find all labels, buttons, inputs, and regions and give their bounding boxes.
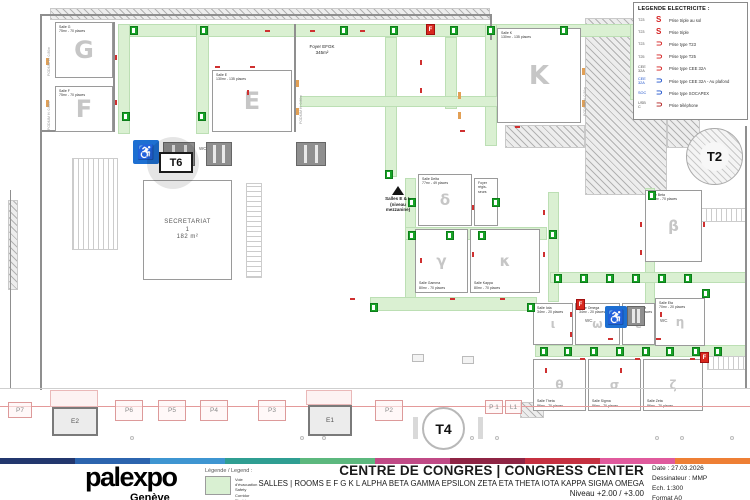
exit-sign-icon (702, 289, 710, 298)
elevator-icon (296, 142, 326, 166)
room-secretariat-label: SECRETARIAT 1 182 m² (144, 219, 231, 242)
palexpo-logo-city: Genève (130, 492, 170, 500)
legend-item-desc: Prise type T25 (669, 54, 743, 59)
color-strip-segment (0, 458, 75, 464)
room-sigma-letter: σ (610, 378, 619, 392)
room-iota: ιSalle Iota 34m² - 20 places (533, 303, 573, 345)
exit-sign-icon (692, 347, 700, 356)
exit-sign-icon (390, 26, 398, 35)
room-e-label: Salle E 130m² - 135 places (216, 73, 246, 82)
legend-item-code: T23 (638, 42, 656, 46)
power-outlet-icon (656, 338, 661, 340)
mezzanine-triangle-icon (392, 186, 404, 195)
outlet-symbol-icon: ⊃ (656, 101, 669, 109)
wall-line (745, 126, 747, 388)
drawing-level: Niveau +2.00 / +3.00 (259, 489, 645, 498)
exit-sign-icon (564, 347, 572, 356)
legend-item-code: CEE 32A (638, 77, 656, 85)
room-f-label: Salle F 75m² - 70 places (59, 89, 85, 98)
room-gamma-label: Salle Gamma 80m² - 70 places (419, 281, 445, 290)
wc-label: WC (585, 318, 593, 323)
wall-line (40, 14, 42, 390)
power-outlet-icon (420, 88, 422, 93)
stairs-icon (707, 356, 747, 370)
podium-label: PODIUM H: 0.80m (299, 95, 303, 124)
palexpo-logo: palexpo (85, 464, 177, 491)
outlet-symbol-icon: S (656, 16, 669, 24)
exit-sign-icon (446, 231, 454, 240)
drawing-title: CENTRE DE CONGRES | CONGRESS CENTER (259, 463, 645, 478)
column-dot (130, 436, 134, 440)
power-outlet-icon (635, 358, 640, 360)
gate-marker-p4: P4 (200, 400, 228, 421)
foyer-note: Foyer EFGK 345m² (302, 44, 342, 55)
exit-sign-icon (487, 26, 495, 35)
legend-item-desc: Prise type SOCAPEX (669, 91, 743, 96)
legend-item-desc: Prise type CEE 32A - Au plafond (669, 79, 743, 84)
power-outlet-icon (580, 358, 585, 360)
stairs-icon (246, 183, 262, 278)
power-outlet-icon (620, 368, 622, 373)
entrance-t2-label: T2 (700, 142, 729, 171)
podium-label: PODIUM H: 0.80m (47, 47, 51, 76)
fire-equipment-icon: F (576, 299, 585, 310)
electricity-legend-rows: T23SPrise triple au solT23SPrise tripleT… (638, 14, 743, 112)
power-outlet-icon (472, 205, 474, 210)
exit-sign-icon (590, 347, 598, 356)
exit-sign-icon (340, 26, 348, 35)
safety-corridor-swatch (205, 476, 231, 495)
exit-sign-icon (200, 26, 208, 35)
power-outlet-icon (570, 332, 572, 337)
gate-marker-p7: P7 (8, 402, 32, 418)
drawing-date: Date : 27.03.2026 (652, 464, 707, 474)
power-outlet-icon (350, 298, 355, 300)
room-kappa-label: Salle Kappa 80m² - 70 places (474, 281, 500, 290)
room-iota-label: Salle Iota 34m² - 20 places (537, 306, 563, 315)
drawing-subtitle: SALLES | ROOMS E F G K L ALPHA BETA GAMM… (259, 479, 645, 488)
drawing-drafter: Dessinateur : MMP (652, 474, 707, 484)
safety-corridor (385, 37, 397, 177)
floor-fixture (462, 356, 474, 364)
exit-sign-icon (540, 347, 548, 356)
power-outlet-icon (250, 66, 255, 68)
room-gamma: γSalle Gamma 80m² - 70 places (415, 229, 468, 293)
column-dot (495, 436, 499, 440)
room-g: GSalle G 75m² - 70 places (55, 22, 113, 78)
exit-sign-icon (642, 347, 650, 356)
column-dot (322, 436, 326, 440)
exit-sign-icon (492, 198, 500, 207)
wall-line (294, 24, 296, 132)
power-outlet-icon (640, 250, 642, 255)
elevator-icon (627, 306, 645, 326)
room-beta-letter: β (668, 217, 679, 235)
legend-item-desc: Prise téléphone (669, 103, 743, 108)
exit-sign-icon (684, 274, 692, 283)
electricity-legend-row: CEE 32A⊃Prise type CEE 32A (638, 63, 743, 75)
podium-label: PODIUM H: 0.80m (47, 101, 51, 130)
legend-item-code: CEE 32A (638, 65, 656, 73)
electricity-legend-row: T23⊃Prise type T23 (638, 38, 743, 50)
exit-sign-icon (527, 303, 535, 312)
legend-item-desc: Prise type T23 (669, 42, 743, 47)
safety-corridor (300, 96, 498, 107)
legend-item-desc: Prise type CEE 32A (669, 66, 743, 71)
pillar (478, 417, 483, 439)
footer-legend-lines: Voie d'évacuation Safety Corridor Flucht… (235, 477, 257, 500)
door-zone-e1 (306, 390, 352, 405)
power-outlet-icon (640, 222, 642, 227)
gate-marker-p3: P3 (258, 400, 286, 421)
room-sigma: σSalle Sigma 86m² - 70 places (588, 359, 641, 411)
exit-sign-icon (370, 303, 378, 312)
power-outlet-icon (660, 312, 662, 317)
floor-plan-sheet: GSalle G 75m² - 70 placesFSalle F 75m² -… (0, 0, 750, 500)
floor-fixture (412, 354, 424, 362)
wc-label: WC (660, 318, 668, 323)
room-f: FSalle F 75m² - 70 places (55, 86, 113, 132)
safety-corridor (548, 192, 559, 302)
power-outlet-icon (115, 100, 117, 105)
exit-sign-icon (560, 26, 568, 35)
power-outlet-icon (608, 338, 613, 340)
drawing-meta: Date : 27.03.2026 Dessinateur : MMP Ech.… (652, 464, 707, 500)
gate-marker-p6: P6 (115, 400, 143, 421)
exit-sign-icon (408, 231, 416, 240)
room-zeta: ζSalle Zeta 86m² - 70 places (643, 359, 703, 411)
power-outlet-icon (543, 252, 545, 257)
exit-sign-icon (385, 170, 393, 179)
legend-item-code: SOC (638, 91, 656, 95)
legend-item-code: USB C (638, 101, 656, 109)
power-outlet-icon (545, 368, 547, 373)
outlet-symbol-icon: ⊃ (656, 53, 669, 61)
stairs-icon (72, 158, 118, 250)
drawing-scale: Ech. 1:300 (652, 484, 707, 494)
podium-label: PODIUM H: 0.80m (583, 87, 587, 116)
power-outlet-icon (265, 30, 270, 32)
elevator-icon (206, 142, 232, 166)
power-outlet-icon (500, 298, 505, 300)
orange-fixture-icon (582, 68, 585, 75)
power-outlet-icon (690, 358, 695, 360)
entrance-t6-label: T6 (159, 152, 193, 173)
room-zeta-letter: ζ (669, 378, 676, 392)
electricity-legend-title: LEGENDE ELECTRICITE : (638, 6, 743, 12)
room-secretariat: SECRETARIAT 1 182 m² (143, 180, 232, 280)
hatched-area (505, 125, 585, 148)
drawing-format: Format A0 (652, 494, 707, 500)
wall-line (10, 190, 11, 388)
mezzanine-note: Salles E & L (niveau mezzanine) (368, 196, 428, 213)
orange-fixture-icon (296, 80, 299, 87)
wc-label: WC (199, 146, 207, 151)
legend-item-code: T25 (638, 55, 656, 59)
outlet-symbol-icon: ⊃ (656, 40, 669, 48)
electricity-legend-row: USB C⊃Prise téléphone (638, 99, 743, 111)
gate-marker-p2: P2 (375, 400, 403, 421)
exit-sign-icon (658, 274, 666, 283)
room-iota-letter: ι (551, 317, 556, 331)
outlet-symbol-icon: ⊃ (656, 65, 669, 73)
pillar (413, 417, 418, 439)
exit-sign-icon (606, 274, 614, 283)
room-theta-letter: θ (555, 378, 563, 392)
legend-item-desc: Prise triple au sol (669, 18, 743, 23)
wheelchair-access-icon: ♿ (605, 306, 627, 328)
room-eta-letter: η (676, 315, 685, 329)
footer-legend: Légende / Legend : Voie d'évacuation Saf… (205, 468, 252, 474)
room-f-letter: F (76, 95, 92, 123)
electricity-legend-row: CEE 32A⊃Prise type CEE 32A - Au plafond (638, 75, 743, 87)
facade-line (0, 388, 750, 389)
safety-corridor (485, 24, 497, 146)
outlet-symbol-icon: ⊃ (656, 77, 669, 85)
power-outlet-icon (570, 312, 572, 317)
electricity-legend-row: T23SPrise triple au sol (638, 14, 743, 26)
room-foyer-regisseurs-label: Foyer régis- seurs (478, 181, 487, 194)
door-marker-e2: E2 (52, 407, 98, 436)
electricity-legend-row: T23SPrise triple (638, 26, 743, 38)
column-dot (470, 436, 474, 440)
exit-sign-icon (554, 274, 562, 283)
room-e: ESalle E 130m² - 135 places (212, 70, 292, 132)
room-k-letter: K (529, 61, 549, 91)
fire-equipment-icon: F (700, 352, 709, 363)
power-outlet-icon (472, 252, 474, 257)
column-dot (300, 436, 304, 440)
exit-sign-icon (632, 274, 640, 283)
room-g-letter: G (74, 36, 94, 64)
room-delta-letter: δ (440, 191, 450, 209)
power-outlet-icon (543, 210, 545, 215)
gate-marker-p5: P5 (158, 400, 186, 421)
electricity-legend-row: T25⊃Prise type T25 (638, 51, 743, 63)
exit-sign-icon (198, 112, 206, 121)
gate-marker-p1: P 1 (485, 400, 503, 414)
power-outlet-icon (420, 60, 422, 65)
room-k: KSalle K 130m² - 135 places (497, 28, 581, 123)
electricity-legend-row: SOC⊃Prise type SOCAPEX (638, 87, 743, 99)
door-marker-e1: E1 (308, 405, 352, 436)
legend-item-desc: Prise triple (669, 30, 743, 35)
legend-item-code: T23 (638, 18, 656, 22)
power-outlet-icon (450, 298, 455, 300)
power-outlet-icon (247, 90, 249, 95)
power-outlet-icon (215, 66, 220, 68)
column-dot (655, 436, 659, 440)
room-delta-label: Salle Delta 77m² - 49 places (422, 177, 448, 186)
power-outlet-icon (360, 30, 365, 32)
room-beta: βSalle Beta 100m² - 70 places (645, 190, 702, 262)
exit-sign-icon (666, 347, 674, 356)
exit-sign-icon (478, 231, 486, 240)
wall-line (113, 22, 115, 132)
exit-sign-icon (616, 347, 624, 356)
room-theta: θSalle Theta 86m² - 70 places (533, 359, 586, 411)
stairs-icon (700, 208, 746, 222)
power-outlet-icon (310, 30, 315, 32)
exit-sign-icon (450, 26, 458, 35)
orange-fixture-icon (458, 92, 461, 99)
title-block-footer: palexpo Genève Légende / Legend : Voie d… (0, 458, 750, 500)
exit-sign-icon (580, 274, 588, 283)
column-dot (680, 436, 684, 440)
power-outlet-icon (460, 130, 465, 132)
power-outlet-icon (420, 258, 422, 263)
room-eta-label: Salle Eta 70m² - 20 places (659, 301, 685, 310)
footer-legend-title: Légende / Legend : (205, 468, 252, 474)
outlet-symbol-icon: ⊃ (656, 89, 669, 97)
exit-sign-icon (130, 26, 138, 35)
wall-line (40, 14, 492, 16)
exit-sign-icon (714, 347, 722, 356)
power-outlet-icon (703, 222, 705, 227)
legend-item-code: T23 (638, 30, 656, 34)
door-zone-e2 (50, 390, 98, 407)
room-kappa-letter: κ (500, 252, 511, 270)
column-dot (730, 436, 734, 440)
entrance-t4-label: T4 (422, 407, 465, 450)
room-g-label: Salle G 75m² - 70 places (59, 25, 85, 34)
drawing-title-block: CENTRE DE CONGRES | CONGRESS CENTER SALL… (259, 463, 645, 498)
power-outlet-icon (115, 55, 117, 60)
gate-marker-l1: L1 (505, 400, 522, 414)
room-omega-letter: ω (592, 317, 602, 331)
outlet-symbol-icon: S (656, 28, 669, 36)
orange-fixture-icon (458, 112, 461, 119)
exit-sign-icon (549, 230, 557, 239)
exit-sign-icon (122, 112, 130, 121)
room-k-label: Salle K 130m² - 135 places (501, 31, 531, 40)
electricity-legend: LEGENDE ELECTRICITE : T23SPrise triple a… (633, 2, 748, 120)
fire-equipment-icon: F (426, 24, 435, 35)
exit-sign-icon (648, 191, 656, 200)
power-outlet-icon (515, 126, 520, 128)
room-gamma-letter: γ (436, 252, 446, 270)
